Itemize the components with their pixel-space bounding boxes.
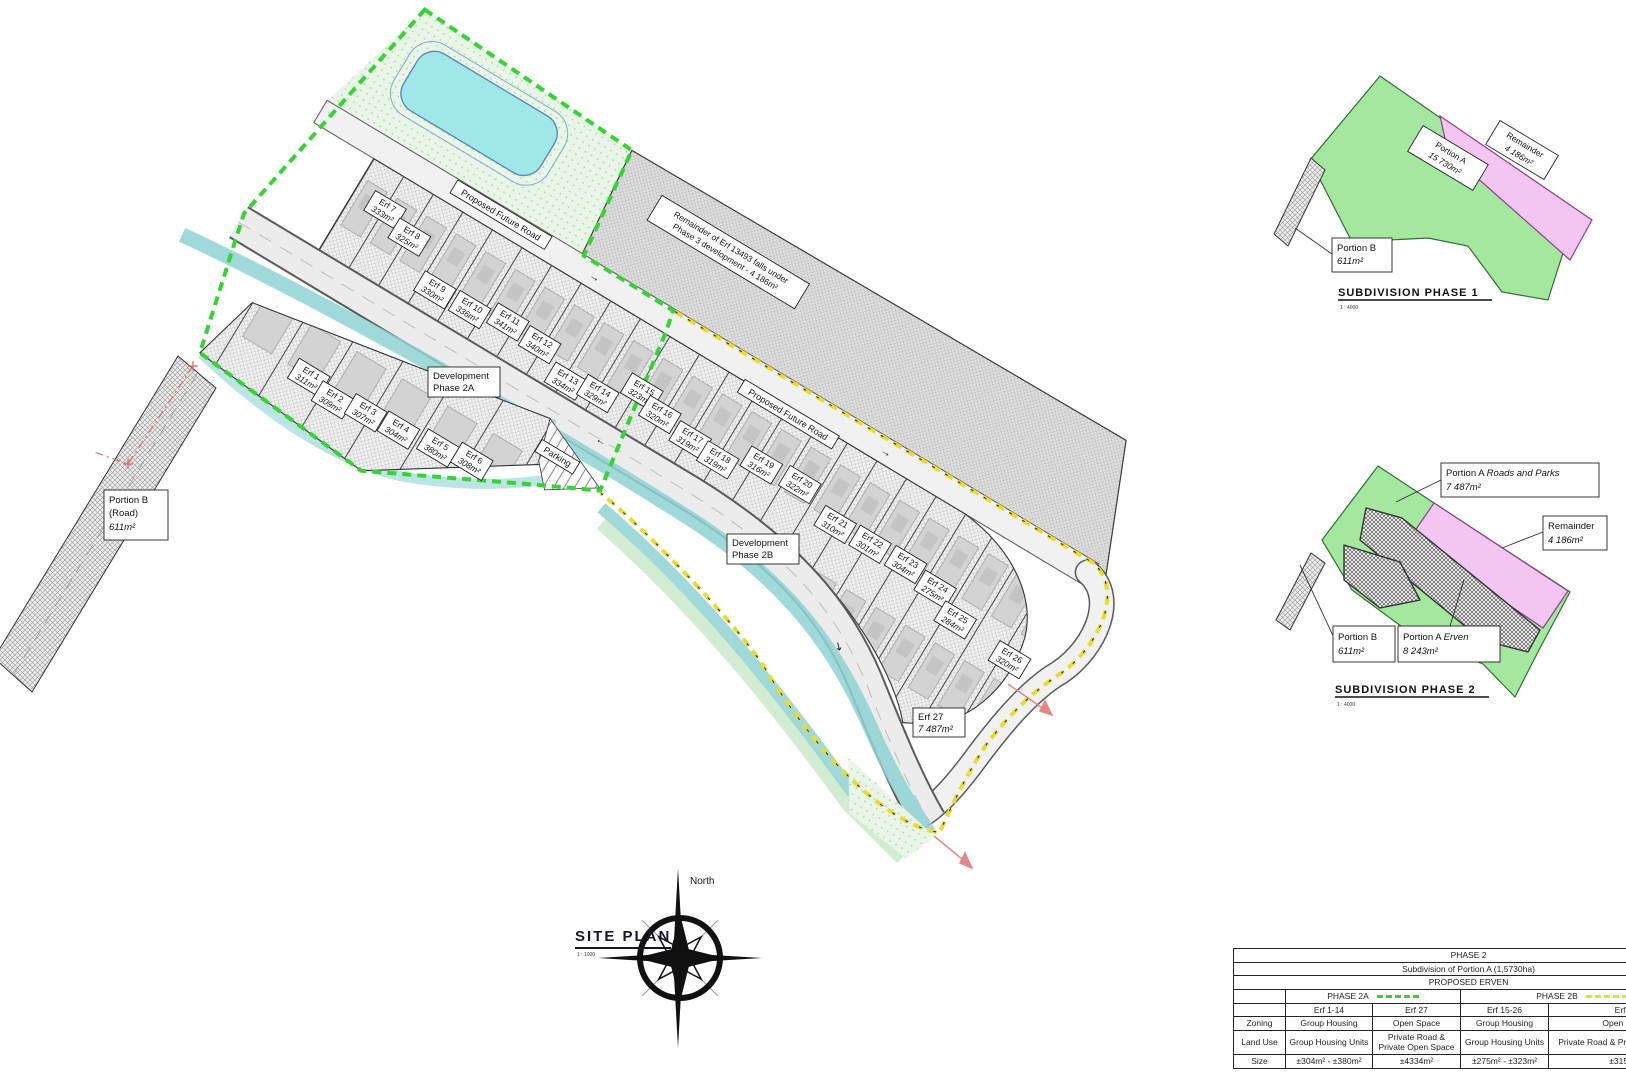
row-label: Zoning [1234,1017,1286,1031]
sub1-title: SUBDIVISION PHASE 1 [1338,287,1479,299]
subdivision-phase-1: Portion A 15 730m² Remainder 4 186m² Por… [1274,76,1592,311]
portion-b-road-label: Portion B (Road) 611m² [104,490,168,540]
row-label: Size [1234,1055,1286,1069]
row-label: Land Use [1234,1030,1286,1054]
dev-phase-2a-label: Development Phase 2A [428,367,500,397]
svg-text:611m²: 611m² [1337,256,1364,267]
svg-text:Erf 27: Erf 27 [918,712,943,723]
svg-text:Portion A Erven: Portion A Erven [1403,632,1469,643]
svg-text:7 487m²: 7 487m² [918,724,954,735]
svg-text:(Road): (Road) [109,508,138,519]
site-plan-canvas: → → ← ↘ Proposed Future Road Proposed Fu… [0,0,1626,1080]
site-plan-scale: 1 : 1000 [577,952,595,958]
sub2-scale: 1 : 4000 [1337,702,1355,708]
phase-2a-header: PHASE 2A [1286,989,1461,1003]
svg-text:Portion B: Portion B [1338,632,1377,643]
table-section: PROPOSED ERVEN [1234,976,1626,990]
col-header: Erf 27 [1549,1003,1626,1017]
svg-text:Development: Development [732,538,788,549]
svg-text:611m²: 611m² [109,522,136,533]
sub2-portion-b-label: Portion B 611m² [1333,626,1395,662]
subdivision-phase-2: Portion A Roads and Parks 7 487m² Remain… [1276,463,1607,708]
table-cell [1234,989,1286,1003]
svg-text:Remainder: Remainder [1548,521,1594,532]
dev-phase-2b-label: Development Phase 2B [727,534,799,564]
sub1-portion-b-label: Portion B 611m² [1332,238,1392,272]
phase2a-dash-swatch [1377,995,1419,998]
sub2-title: SUBDIVISION PHASE 2 [1335,684,1476,696]
table-row: Zoning Group Housing Open Space Group Ho… [1234,1017,1626,1031]
svg-text:Phase 2B: Phase 2B [732,550,773,561]
table-row: Land Use Group Housing Units Private Roa… [1234,1030,1626,1054]
svg-text:Portion B: Portion B [109,495,148,506]
drawing-sheet: → → ← ↘ Proposed Future Road Proposed Fu… [0,0,1626,1080]
svg-text:Portion B: Portion B [1337,243,1376,254]
sub2-erven-label: Portion A Erven 8 243m² [1398,626,1500,662]
svg-text:4 186m²: 4 186m² [1548,535,1584,546]
sub2-portion-b-strip [1276,553,1325,630]
col-header: Erf 27 [1373,1003,1461,1017]
svg-text:7 487m²: 7 487m² [1446,482,1482,493]
svg-text:Portion A Roads and Parks: Portion A Roads and Parks [1446,468,1560,479]
sub2-roads-parks-label: Portion A Roads and Parks 7 487m² [1441,463,1599,497]
table-row: Size ±304m² - ±380m² ±4334m² ±275m² - ±3… [1234,1055,1626,1069]
sub1-portion-b-strip [1274,158,1325,246]
svg-text:Development: Development [433,371,489,382]
erf27-label: Erf 27 7 487m² [913,708,965,737]
north-label: North [690,876,714,887]
leader-line [1295,228,1332,254]
table-title: PHASE 2 [1234,949,1626,963]
phase2-table: PHASE 2 Subdivision of Portion A (1,5730… [1233,948,1626,1080]
phase2b-dash-swatch [1586,995,1626,998]
col-header: Erf 1-14 [1286,1003,1373,1017]
sub2-remainder-label: Remainder 4 186m² [1543,516,1607,550]
north-compass-icon: North [598,868,762,1048]
site-plan-title: SITE PLAN [575,928,671,949]
phase-2b-header: PHASE 2B [1461,989,1626,1003]
sub1-scale: 1 : 4000 [1340,305,1358,311]
svg-text:8 243m²: 8 243m² [1403,646,1439,657]
development-plan: → → ← ↘ Proposed Future Road Proposed Fu… [98,0,1194,885]
leader-line [1502,532,1543,548]
col-header: Erf 15-26 [1461,1003,1549,1017]
svg-text:Phase 2A: Phase 2A [433,383,475,394]
table-cell [1234,1003,1286,1017]
svg-text:611m²: 611m² [1338,646,1365,657]
table-subtitle: Subdivision of Portion A (1,5730ha) [1234,962,1626,976]
